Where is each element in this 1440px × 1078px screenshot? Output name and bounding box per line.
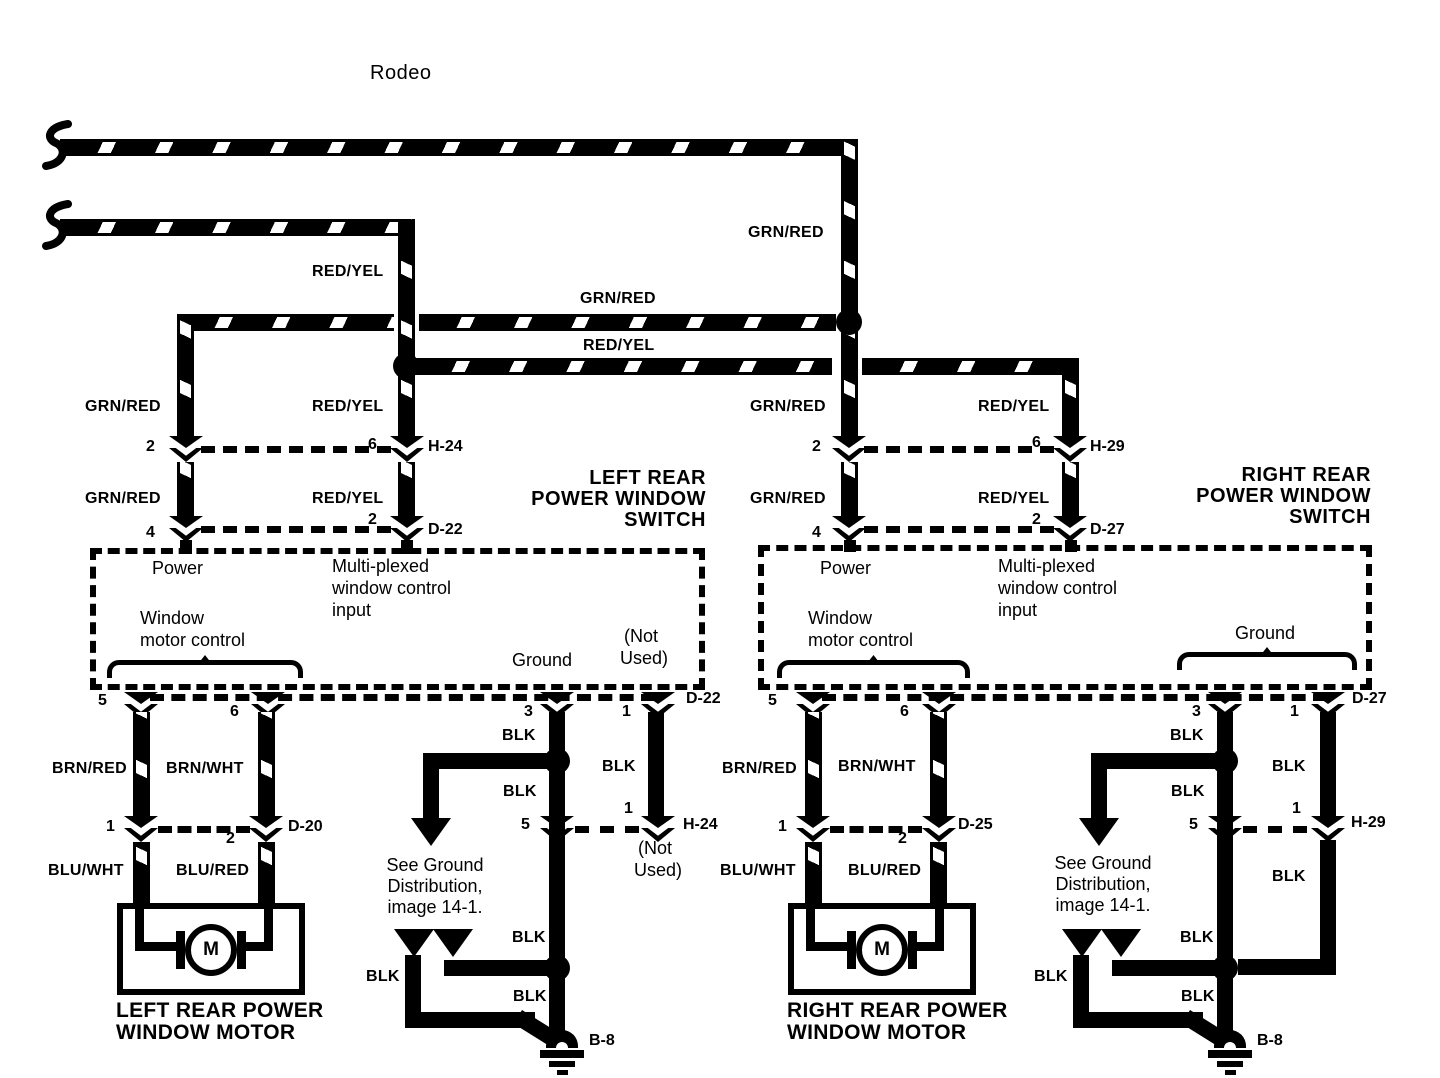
- box-text: Power: [152, 558, 203, 579]
- motor-brush: [176, 931, 185, 969]
- wire-label: BRN/WHT: [838, 758, 916, 776]
- box-text: window control: [998, 578, 1117, 599]
- wire-label: BLU/RED: [176, 862, 249, 880]
- wire-label: BLK: [1171, 783, 1205, 801]
- terminal-icon: [249, 816, 283, 842]
- wire-label: BLK: [1272, 758, 1306, 776]
- wire-label: BLK: [1272, 868, 1306, 886]
- wire-red-yel: [1062, 462, 1079, 518]
- wire-blk-branch: [423, 753, 439, 820]
- box-text: Ground: [1235, 623, 1295, 644]
- terminal-icon: [1053, 516, 1087, 542]
- pin-number: 5: [521, 816, 530, 834]
- title-line: LEFT REAR: [440, 468, 706, 489]
- ground-line: [549, 1061, 575, 1067]
- title-line: SWITCH: [440, 510, 706, 531]
- junction-dot: [544, 955, 570, 981]
- pin-number: 5: [768, 692, 777, 710]
- wire-label: BRN/RED: [722, 760, 797, 778]
- wire-red-yel-branch-left: [414, 358, 832, 375]
- wire-blk-ground2: [1238, 959, 1336, 975]
- pin-number: 1: [1290, 703, 1299, 721]
- terminal-icon: [540, 816, 574, 842]
- wire-blk: [405, 955, 421, 1017]
- ground-line: [557, 1070, 568, 1075]
- box-text: (Not: [624, 626, 658, 647]
- connector-row-line: [830, 826, 922, 833]
- motor-m: M: [874, 939, 890, 961]
- wire-red-yel-top: [60, 219, 415, 236]
- pin-number: 3: [1192, 703, 1201, 721]
- wire-blk: [1112, 960, 1217, 976]
- connector-label-d27: D-27: [1352, 690, 1387, 708]
- connector-label-d22: D-22: [686, 690, 721, 708]
- wire-blk: [444, 960, 549, 976]
- connector-row-line: [822, 694, 1327, 701]
- title-line: RIGHT REAR POWER: [787, 1000, 1008, 1022]
- wire-grn-red-branch-right: [419, 314, 836, 331]
- junction-dot: [1212, 955, 1238, 981]
- motor-brush: [847, 931, 856, 969]
- connector-row-line: [864, 446, 1054, 453]
- wire-grn-red: [841, 462, 858, 518]
- pin-number: 2: [812, 438, 821, 456]
- pin-number: 4: [812, 524, 821, 542]
- wire-label: BLK: [502, 727, 536, 745]
- wire-blk-branch: [423, 753, 549, 769]
- motor-brush: [908, 931, 917, 969]
- connector-label-b8: B-8: [589, 1032, 615, 1050]
- terminal-icon: [124, 816, 158, 842]
- wire-label: GRN/RED: [580, 290, 656, 308]
- wire-label: BLK: [512, 929, 546, 947]
- wire-label: BLK: [1170, 727, 1204, 745]
- pin-number: 2: [226, 830, 235, 848]
- ground-line: [1217, 1061, 1243, 1067]
- wiring-diagram: Rodeo RED/YEL GRN/RED GRN/RED RED/YEL GR…: [0, 0, 1440, 1078]
- box-text: motor control: [140, 630, 245, 651]
- connector-row-line: [864, 526, 1054, 533]
- terminal-icon: [390, 436, 424, 462]
- connector-label-h24: H-24: [683, 816, 718, 834]
- note-line: See Ground: [1023, 853, 1183, 874]
- connector-row-line: [575, 826, 639, 833]
- junction-dot: [393, 353, 419, 379]
- wire-label: RED/YEL: [312, 398, 383, 416]
- title-line: POWER WINDOW: [1105, 486, 1371, 507]
- pin-number: 1: [106, 818, 115, 836]
- note-line: Distribution,: [355, 876, 515, 897]
- connector-row-line: [158, 826, 250, 833]
- motor-m: M: [203, 939, 219, 961]
- connector-row-line: [1243, 826, 1307, 833]
- wire-blu-wht: [133, 842, 150, 905]
- pin-number: 6: [1032, 434, 1041, 452]
- connector-label-b8: B-8: [1257, 1032, 1283, 1050]
- pin-number: 5: [1189, 816, 1198, 834]
- wire-label: RED/YEL: [583, 337, 654, 355]
- terminal-icon: [1053, 436, 1087, 462]
- wire-blk-notused: [648, 712, 664, 818]
- connector-label-d20: D-20: [288, 818, 323, 836]
- chassis-ground-icon: [546, 1030, 578, 1048]
- terminal-icon: [1208, 816, 1242, 842]
- ground-feed-arrow-icon: [433, 929, 473, 957]
- wire-label: GRN/RED: [85, 490, 161, 508]
- ground-feed-arrow-icon: [394, 929, 434, 957]
- wire-grn-red-drop-left: [177, 314, 194, 438]
- wire-label: GRN/RED: [750, 490, 826, 508]
- wire-grn-red: [177, 462, 194, 518]
- connector-row-line: [201, 526, 391, 533]
- wire-label: RED/YEL: [978, 398, 1049, 416]
- title-line: WINDOW MOTOR: [787, 1022, 1008, 1044]
- wire-grn-red-branch-left: [177, 314, 394, 331]
- box-text: Ground: [512, 650, 572, 671]
- box-text: Window: [808, 608, 872, 629]
- motor-symbol: M: [185, 924, 237, 976]
- not-used-text: Used): [634, 860, 682, 881]
- motor-inner-wire: [264, 909, 273, 951]
- terminal-icon: [922, 816, 956, 842]
- motor-inner-wire: [935, 909, 944, 951]
- wire-label: BLU/WHT: [48, 862, 124, 880]
- wire-label: GRN/RED: [85, 398, 161, 416]
- motor-inner-wire: [806, 942, 848, 951]
- box-text: Power: [820, 558, 871, 579]
- wire-label: RED/YEL: [312, 490, 383, 508]
- terminal-icon: [832, 436, 866, 462]
- wire-label: BRN/RED: [52, 760, 127, 778]
- pin-number: 2: [898, 830, 907, 848]
- wire-blk-ground2: [1320, 840, 1336, 975]
- connector-label-h24: H-24: [428, 438, 463, 456]
- note-line: See Ground: [355, 855, 515, 876]
- wire-label: BLK: [1181, 988, 1215, 1006]
- wire-label: BLU/WHT: [720, 862, 796, 880]
- wire-label: BLK: [1180, 929, 1214, 947]
- junction-dot: [836, 309, 862, 335]
- pin-number: 6: [900, 703, 909, 721]
- wire-grn-red-right-vertical: [841, 139, 858, 438]
- wire-label: BLK: [503, 783, 537, 801]
- wire-label: GRN/RED: [748, 224, 824, 242]
- connector-row-line: [150, 694, 655, 701]
- wire-label: GRN/RED: [750, 398, 826, 416]
- left-switch-title: LEFT REAR POWER WINDOW SWITCH: [440, 468, 706, 531]
- ground-line: [1225, 1070, 1236, 1075]
- wire-label: BLK: [366, 968, 400, 986]
- ground-note: See Ground Distribution, image 14-1.: [355, 855, 515, 918]
- brace-icon: [777, 660, 970, 678]
- box-text: window control: [332, 578, 451, 599]
- pin-number: 6: [368, 436, 377, 454]
- note-line: Distribution,: [1023, 874, 1183, 895]
- wire-label: BLK: [513, 988, 547, 1006]
- pin-number: 1: [622, 703, 631, 721]
- wire-blk-branch: [1091, 753, 1107, 820]
- left-motor-title: LEFT REAR POWER WINDOW MOTOR: [116, 1000, 324, 1044]
- title-line: POWER WINDOW: [440, 489, 706, 510]
- box-text: input: [332, 600, 371, 621]
- wire-blk-ground2: [1320, 712, 1336, 818]
- wire-blu-wht: [805, 842, 822, 905]
- wire-brn-red: [805, 712, 822, 818]
- note-line: image 14-1.: [1023, 895, 1183, 916]
- box-text: Used): [620, 648, 668, 669]
- wire-red-yel-left-vertical: [398, 219, 415, 438]
- pin-number: 3: [524, 703, 533, 721]
- wire-blk-branch: [1091, 753, 1217, 769]
- pin-number: 6: [230, 703, 239, 721]
- wire-label: BLU/RED: [848, 862, 921, 880]
- page-title: Rodeo: [370, 62, 431, 85]
- wire-red-yel: [398, 462, 415, 518]
- right-switch-title: RIGHT REAR POWER WINDOW SWITCH: [1105, 465, 1371, 528]
- connector-label-h29: H-29: [1090, 438, 1125, 456]
- motor-symbol: M: [856, 924, 908, 976]
- wire-brn-wht: [258, 712, 275, 818]
- ground-note: See Ground Distribution, image 14-1.: [1023, 853, 1183, 916]
- connector-label-d25: D-25: [958, 816, 993, 834]
- pin-number: 2: [368, 511, 377, 529]
- wire-blk: [1073, 955, 1089, 1017]
- pin-number: 5: [98, 692, 107, 710]
- title-line: SWITCH: [1105, 507, 1371, 528]
- pin-number: 2: [146, 438, 155, 456]
- right-motor-title: RIGHT REAR POWER WINDOW MOTOR: [787, 1000, 1008, 1044]
- wire-blu-red: [930, 842, 947, 905]
- brace-icon: [1177, 652, 1357, 670]
- terminal-icon: [169, 516, 203, 542]
- wire-red-yel-branch-right: [862, 358, 1079, 375]
- ground-feed-arrow-icon: [1101, 929, 1141, 957]
- pin-number: 1: [624, 800, 633, 818]
- box-text: input: [998, 600, 1037, 621]
- box-text: motor control: [808, 630, 913, 651]
- terminal-icon: [169, 436, 203, 462]
- title-line: WINDOW MOTOR: [116, 1022, 324, 1044]
- ground-line: [540, 1050, 584, 1058]
- pin-number: 4: [146, 524, 155, 542]
- wire-blu-red: [258, 842, 275, 905]
- motor-brush: [237, 931, 246, 969]
- ground-feed-arrow-icon: [1079, 818, 1119, 846]
- motor-inner-wire: [135, 942, 177, 951]
- note-line: image 14-1.: [355, 897, 515, 918]
- terminal-icon: [390, 516, 424, 542]
- not-used-text: (Not: [638, 838, 672, 859]
- box-text: Multi-plexed: [998, 556, 1095, 577]
- wire-label: RED/YEL: [312, 263, 383, 281]
- pin-number: 2: [1032, 511, 1041, 529]
- wire-label: BRN/WHT: [166, 760, 244, 778]
- ground-feed-arrow-icon: [411, 818, 451, 846]
- title-line: RIGHT REAR: [1105, 465, 1371, 486]
- terminal-icon: [832, 516, 866, 542]
- terminal-icon: [1311, 816, 1345, 842]
- connector-label-h29: H-29: [1351, 814, 1386, 832]
- terminal-icon: [796, 816, 830, 842]
- pin-number: 1: [778, 818, 787, 836]
- wire-grn-red-top: [60, 139, 858, 156]
- brace-icon: [107, 660, 303, 678]
- box-text: Window: [140, 608, 204, 629]
- wire-label: BLK: [602, 758, 636, 776]
- wire-brn-wht: [930, 712, 947, 818]
- box-text: Multi-plexed: [332, 556, 429, 577]
- ground-feed-arrow-icon: [1062, 929, 1102, 957]
- ground-line: [1208, 1050, 1252, 1058]
- wire-label: RED/YEL: [978, 490, 1049, 508]
- wire-red-yel-drop-right: [1062, 358, 1079, 438]
- pin-number: 1: [1292, 800, 1301, 818]
- wire-label: BLK: [1034, 968, 1068, 986]
- wire-brn-red: [133, 712, 150, 818]
- connector-row-line: [201, 446, 391, 453]
- title-line: LEFT REAR POWER: [116, 1000, 324, 1022]
- chassis-ground-icon: [1214, 1030, 1246, 1048]
